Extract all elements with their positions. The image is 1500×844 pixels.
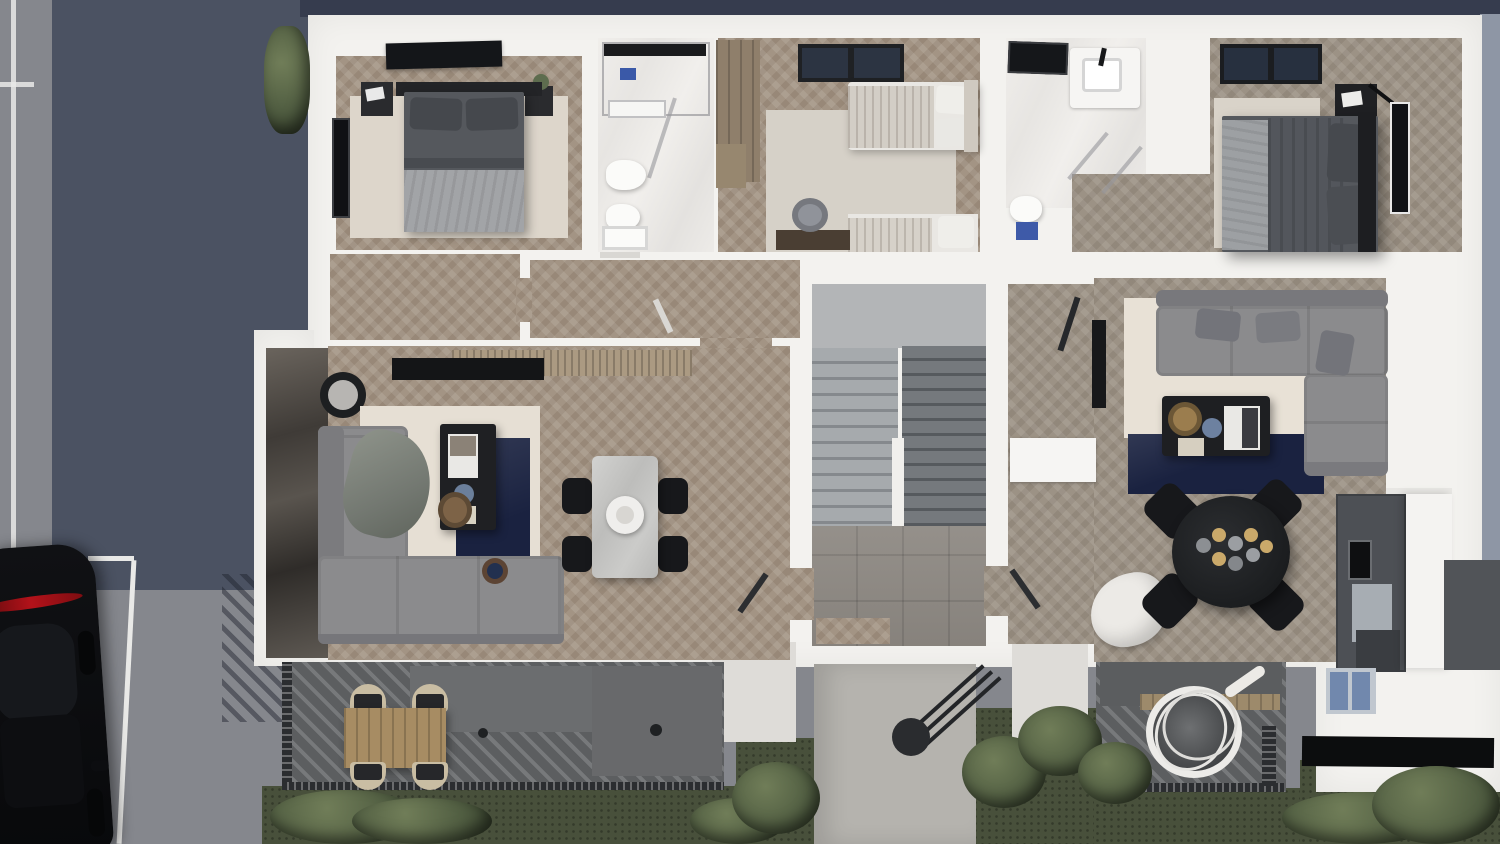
built-in-oven xyxy=(1348,540,1372,580)
dining-chair xyxy=(562,536,592,572)
round-side-table-top xyxy=(328,380,358,410)
floorplan-render xyxy=(0,0,1500,844)
outdoor-table xyxy=(344,708,446,768)
pillow xyxy=(465,97,518,131)
terrace-smooth-concrete xyxy=(592,666,722,776)
car-wheel xyxy=(86,788,105,837)
terrace-railing xyxy=(282,782,724,790)
wall-art-panel xyxy=(386,40,503,69)
black-glass-band xyxy=(1302,736,1494,768)
gold-tray xyxy=(1168,402,1202,436)
dining-chair xyxy=(562,478,592,514)
glass-decor xyxy=(1228,556,1243,571)
kitchen-counter-dark xyxy=(1444,560,1500,670)
planter-dot xyxy=(478,728,488,738)
bush xyxy=(1078,742,1152,804)
window-pane xyxy=(1274,48,1318,80)
opening-corridor-living xyxy=(700,338,772,348)
car-roof xyxy=(0,714,85,809)
bush xyxy=(352,798,492,844)
pillow xyxy=(938,216,974,248)
terrace-railing xyxy=(282,662,292,790)
glass-decor xyxy=(1246,548,1260,562)
round-tray-table xyxy=(438,492,472,528)
wall-art xyxy=(1390,102,1410,214)
door-opening-right-apartment xyxy=(984,566,1010,616)
terrace-left xyxy=(282,662,724,790)
glass-decor xyxy=(1196,538,1211,553)
door-opening-left-apartment xyxy=(788,568,814,620)
glass-decor xyxy=(1212,528,1226,542)
bed-fold xyxy=(404,158,524,168)
stool-top xyxy=(487,563,503,579)
bath-mat xyxy=(1016,222,1038,240)
blue-plate xyxy=(1202,418,1222,438)
hedge xyxy=(264,26,310,134)
car-rear-window xyxy=(0,622,79,723)
beverage-cooler-door xyxy=(1352,672,1370,710)
kitchen-lower-unit xyxy=(1356,630,1400,672)
dining-chair xyxy=(658,536,688,572)
wardrobe-lower xyxy=(716,144,746,188)
table-centerpiece-inner xyxy=(616,506,634,524)
corner-sofa-right-leg xyxy=(1304,374,1388,470)
book xyxy=(1341,91,1363,108)
window-pane xyxy=(854,48,900,78)
hall-cabinet xyxy=(1010,438,1096,482)
dining-chair xyxy=(658,478,688,514)
window-pane xyxy=(1224,48,1268,80)
beverage-cooler-door xyxy=(1330,672,1348,710)
glass-decor xyxy=(1228,536,1243,551)
pillow xyxy=(409,97,462,131)
hall-right-top-floor xyxy=(1072,174,1212,252)
round-dining-table xyxy=(1172,496,1290,608)
car-wheel xyxy=(77,630,96,675)
stair-landing-top xyxy=(812,284,986,348)
skylight xyxy=(1007,41,1068,75)
desk xyxy=(776,230,850,250)
shower-head-strip xyxy=(604,44,706,56)
bed-duvet xyxy=(848,218,932,252)
bush xyxy=(1372,766,1500,844)
vestibule-wood-patch xyxy=(816,618,890,644)
towel-rail xyxy=(608,100,666,118)
corner-sofa-chaise xyxy=(318,556,564,644)
desk-chair xyxy=(792,198,828,232)
coffee-table-book-art xyxy=(450,436,476,456)
sofa-chaise-end xyxy=(1304,462,1388,476)
pillow xyxy=(1195,308,1242,342)
window xyxy=(332,118,350,218)
pillow xyxy=(1315,329,1356,376)
parking-line xyxy=(0,82,34,87)
toilet xyxy=(1010,196,1042,222)
wall-tv xyxy=(1092,320,1106,408)
bed-blanket xyxy=(404,170,524,232)
door-opening-entry-corridor xyxy=(516,278,532,322)
car-mirror xyxy=(90,760,109,772)
bush xyxy=(732,762,820,834)
bed-duvet xyxy=(848,86,934,148)
glass-decor xyxy=(1244,528,1258,542)
washbasin xyxy=(602,226,648,250)
pillow xyxy=(1255,311,1301,344)
terrace-railing xyxy=(1262,726,1276,786)
stair-flight-right xyxy=(902,346,986,544)
planter-dot xyxy=(650,724,662,736)
door-leaf xyxy=(600,252,640,258)
stair-flight-left xyxy=(812,348,898,526)
entry-hall-left-floor xyxy=(330,254,520,340)
tv-sideboard xyxy=(392,358,544,380)
toilet xyxy=(606,160,646,190)
window-pane xyxy=(802,48,848,78)
glass-decor xyxy=(1260,540,1273,553)
shower-control xyxy=(620,68,636,80)
bed-headboard xyxy=(964,80,978,152)
coffee-table-card-art xyxy=(1242,408,1258,448)
glass-decor xyxy=(1212,552,1226,566)
beige-tray xyxy=(1178,438,1204,456)
canopy-post xyxy=(892,718,930,756)
bed-headboard xyxy=(1358,112,1376,252)
sofa-front-edge xyxy=(318,634,564,644)
